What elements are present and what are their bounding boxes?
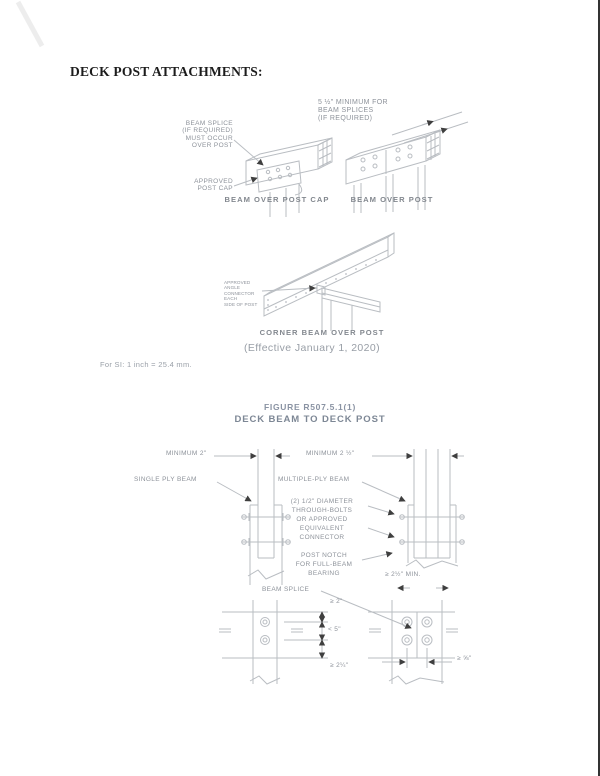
beam-splice-label: BEAM SPLICE (IF REQUIRED) MUST OCCUR OVE… [160,120,233,150]
dim-ge-2-label: ≥ 2" [330,598,343,605]
page-title: DECK POST ATTACHMENTS: [70,64,263,80]
corner-beam-over-post-drawing [262,233,394,331]
minimum-2-label: MINIMUM 2" [166,450,206,457]
min-beam-splice-label: 5 ½" MINIMUM FOR BEAM SPLICES (IF REQUIR… [318,99,418,123]
dim-ge-5-8-label: ≥ ⅝" [457,655,472,662]
figure-number: FIGURE R507.5.1(1) [235,402,385,412]
through-bolts-label: (2) 1/2" DIAMETER THROUGH-BOLTS OR APPRO… [280,497,364,542]
angle-connector-label: APPROVED ANGLE CONNECTOR EACH SIDE OF PO… [224,280,266,307]
beam-splice-callout: BEAM SPLICE [262,586,309,593]
beam-over-post-cap-caption: BEAM OVER POST CAP [220,196,334,203]
figure-title: DECK BEAM TO DECK POST [225,414,395,425]
single-ply-beam-label: SINGLE PLY BEAM [134,476,197,483]
dim-lt-5-label: < 5" [328,626,341,633]
scan-artifact [18,2,42,46]
multiple-ply-beam-label: MULTIPLE-PLY BEAM [278,476,349,483]
approved-post-cap-label: APPROVED POST CAP [173,178,233,193]
document-page: DECK POST ATTACHMENTS: BEAM SPLICE (IF R… [0,0,600,776]
effective-date-note: (Effective January 1, 2020) [232,342,392,354]
dim-ge-2-quarter-label: ≥ 2¼" [330,662,348,669]
si-conversion-note: For SI: 1 inch = 25.4 mm. [100,360,192,369]
corner-beam-caption: CORNER BEAM OVER POST [252,329,392,336]
beam-over-post-caption: BEAM OVER POST [342,196,442,203]
beam-over-post-cap-drawing [234,138,332,217]
post-notch-label: POST NOTCH FOR FULL-BEAM BEARING [286,551,362,578]
min-bearing-label: ≥ 2½" MIN. [385,571,421,578]
technical-drawings [0,0,600,776]
minimum-2-half-label: MINIMUM 2 ½" [306,450,354,457]
